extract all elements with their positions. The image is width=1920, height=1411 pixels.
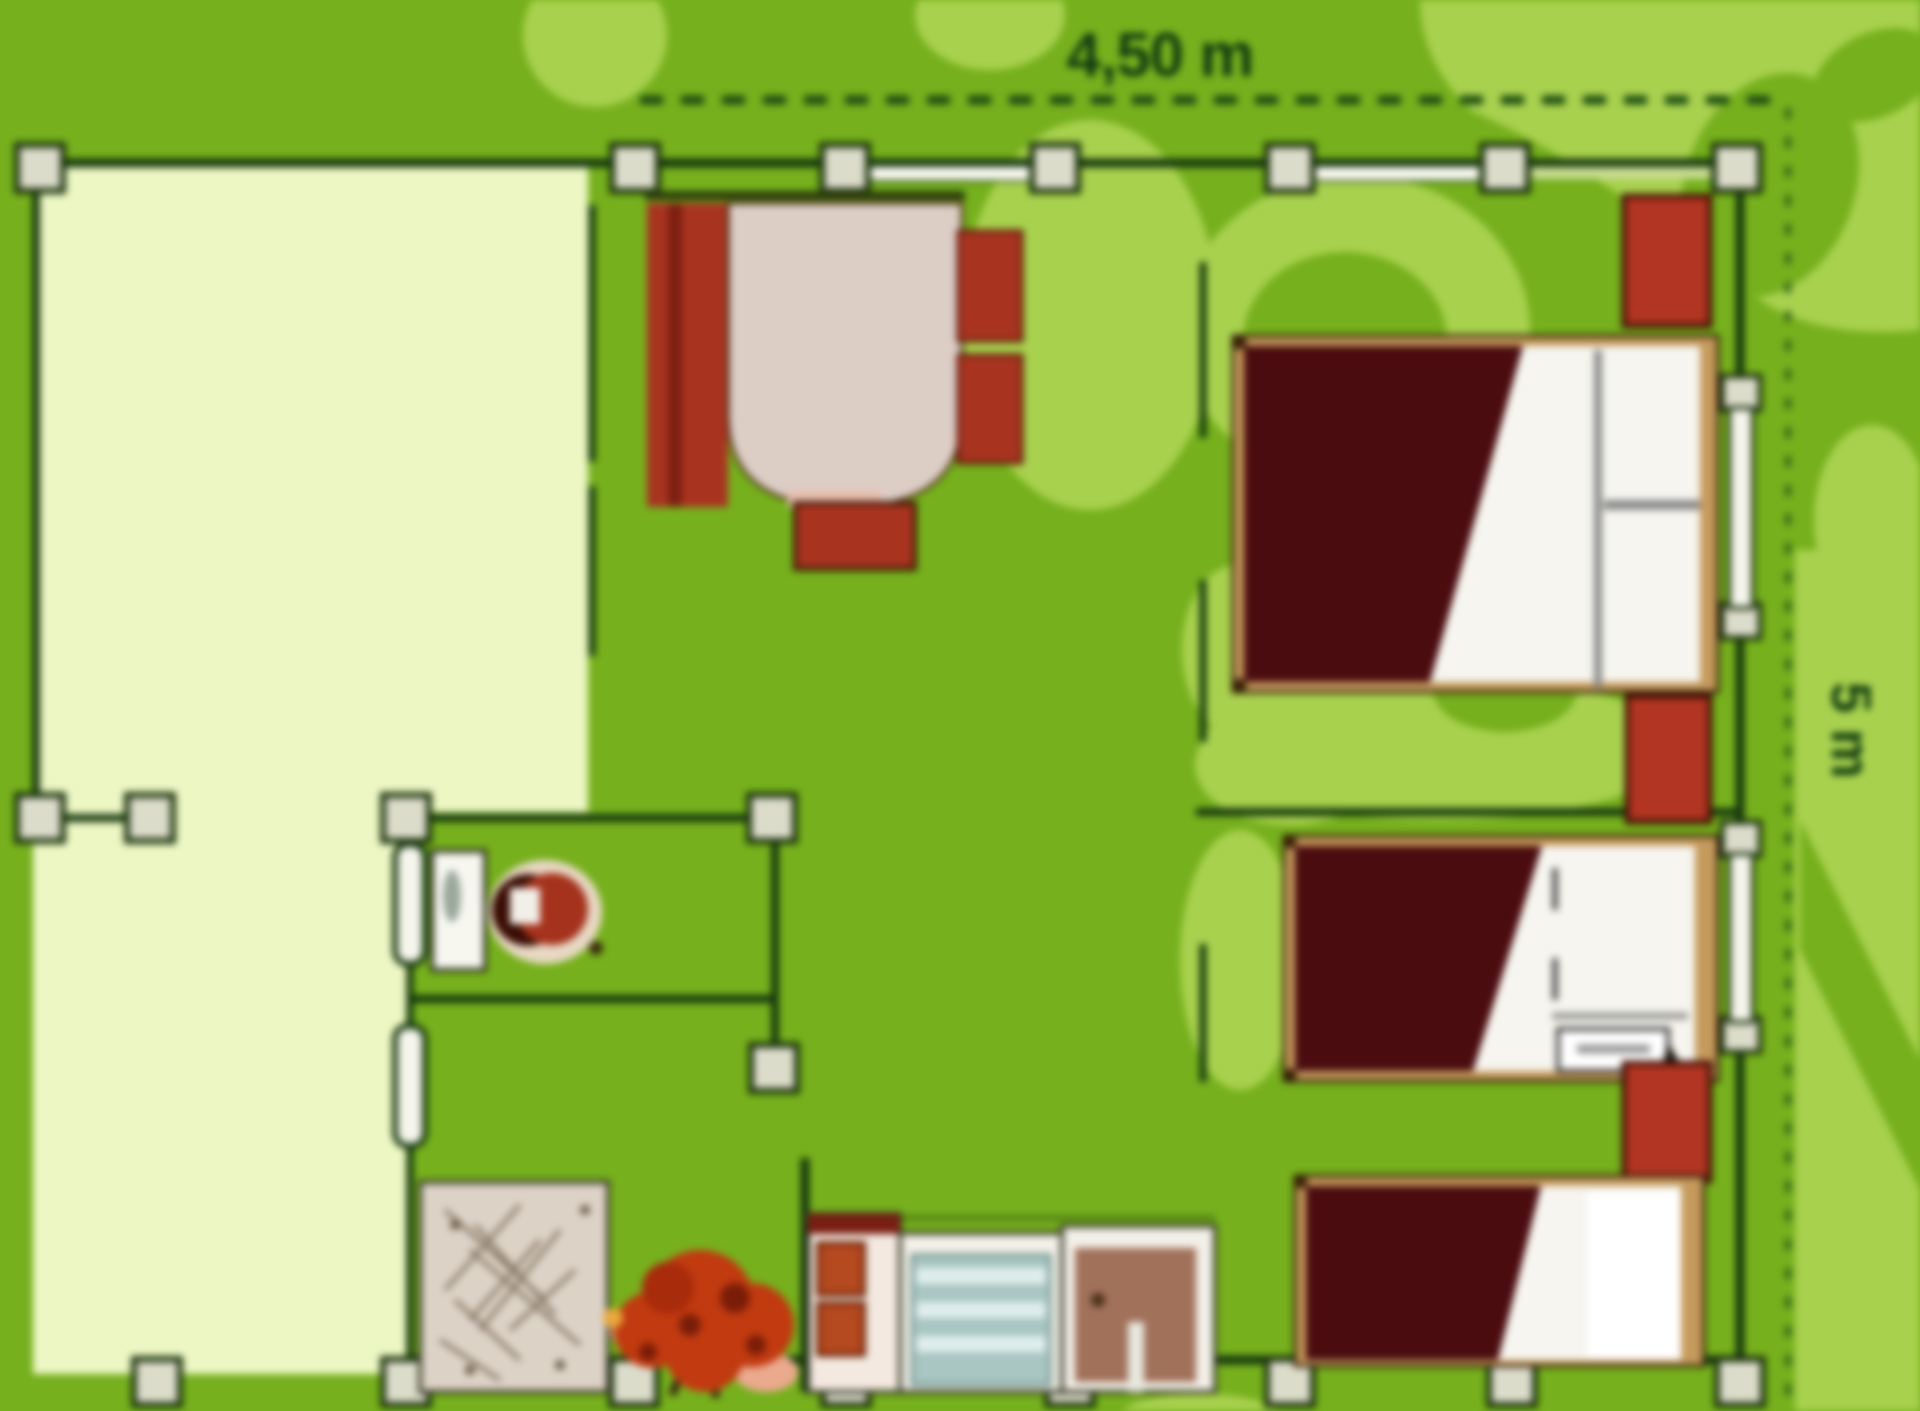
svg-text:5 m: 5 m [1820, 682, 1883, 779]
svg-text:4,50 m: 4,50 m [1066, 21, 1253, 90]
